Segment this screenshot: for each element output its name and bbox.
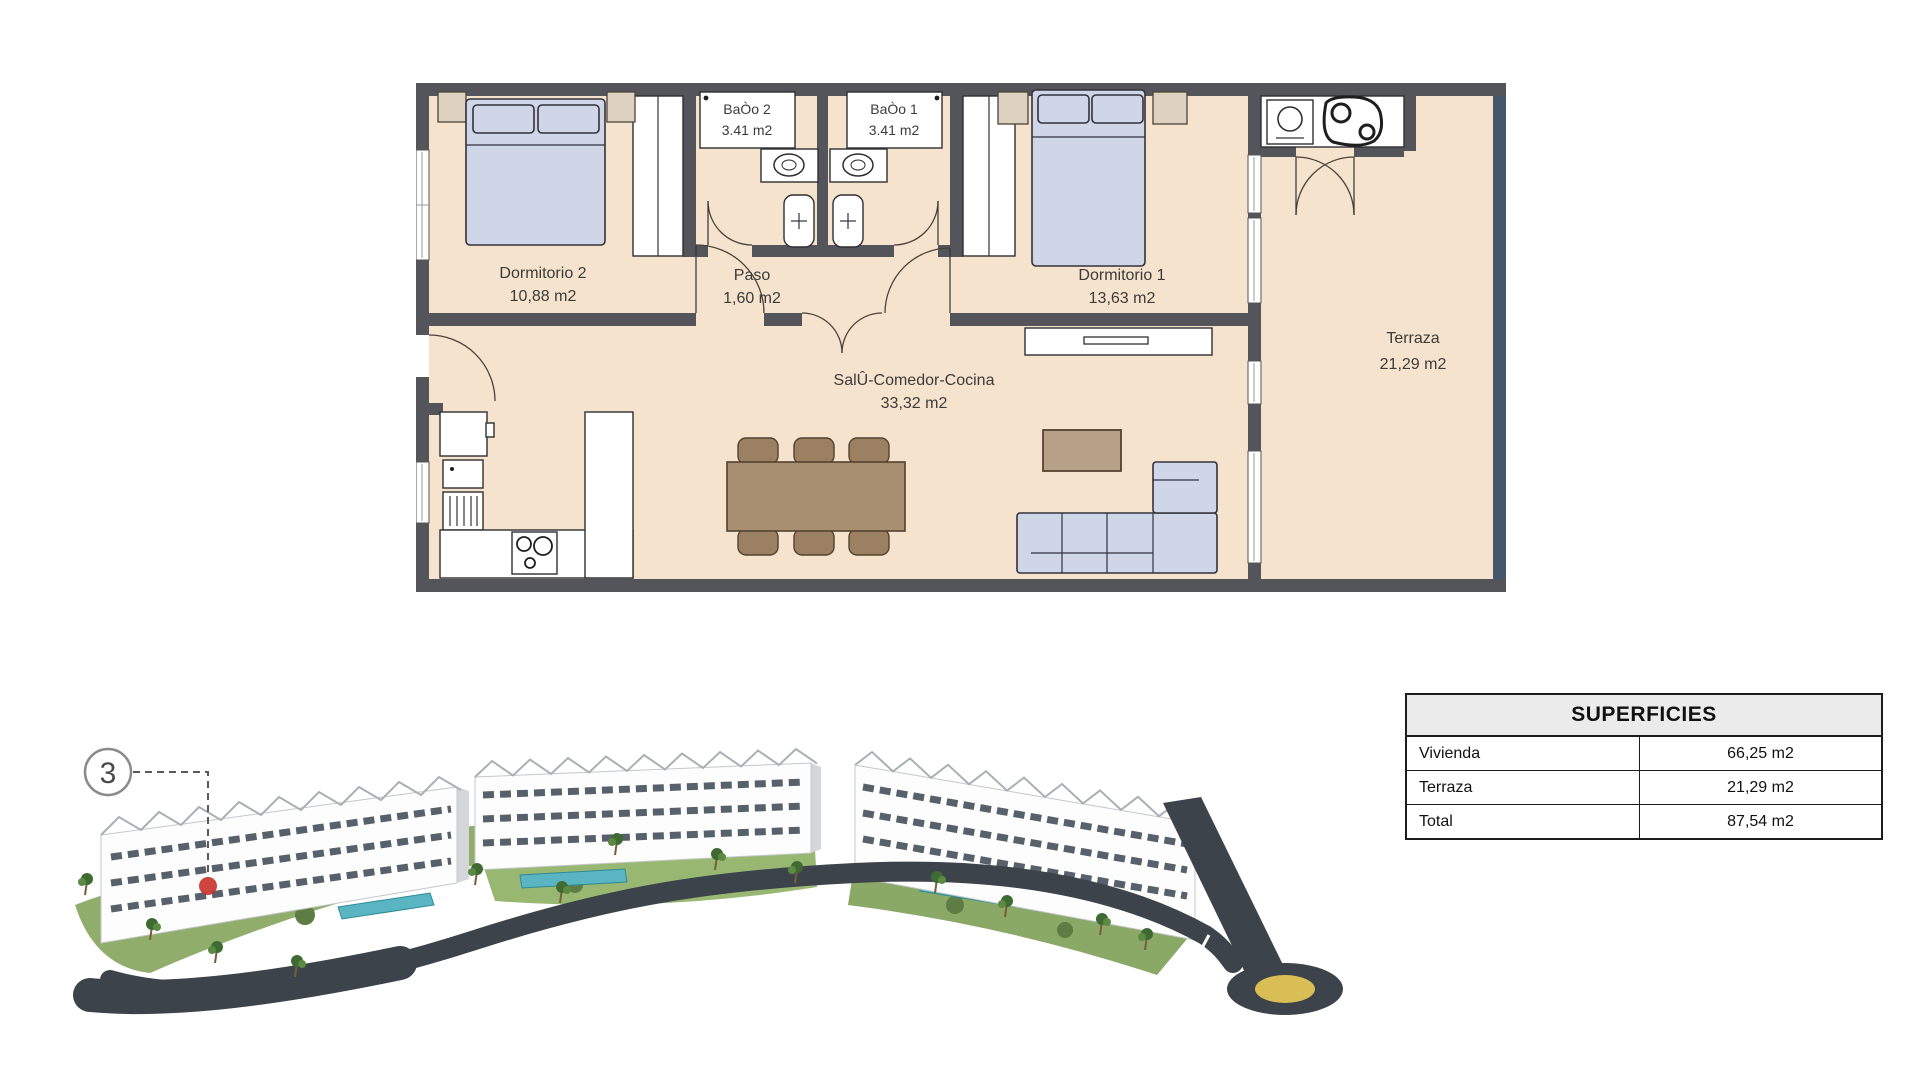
building-middle bbox=[475, 749, 821, 870]
coffee-table bbox=[1043, 430, 1121, 471]
pillow bbox=[1092, 95, 1143, 123]
room-label-terraza: Terraza bbox=[1386, 330, 1439, 347]
row-label: Vivienda bbox=[1407, 737, 1640, 770]
table-row: Total 87,54 m2 bbox=[1407, 805, 1881, 838]
room-label-bano2: BaÒo 2 bbox=[723, 101, 771, 117]
chair bbox=[794, 438, 834, 464]
room-area-salon: 33,32 m2 bbox=[881, 395, 948, 412]
chair bbox=[849, 438, 889, 464]
nightstand bbox=[1153, 92, 1187, 124]
fridge-icon bbox=[440, 412, 487, 456]
sofa-chaise bbox=[1153, 462, 1217, 513]
room-label-dormitorio1: Dormitorio 1 bbox=[1078, 267, 1165, 284]
chair bbox=[794, 529, 834, 555]
pillow bbox=[538, 105, 599, 133]
room-area-bano2: 3.41 m2 bbox=[722, 122, 773, 138]
room-label-bano1: BaÒo 1 bbox=[870, 101, 918, 117]
row-value: 66,25 m2 bbox=[1640, 737, 1881, 770]
row-value: 87,54 m2 bbox=[1640, 805, 1881, 838]
floor-plan: Dormitorio 2 10,88 m2 Paso 1,60 m2 BaÒo … bbox=[416, 83, 1506, 592]
row-label: Total bbox=[1407, 805, 1640, 838]
superficies-table: SUPERFICIES Vivienda 66,25 m2 Terraza 21… bbox=[1405, 693, 1883, 840]
room-area-dormitorio2: 10,88 m2 bbox=[510, 288, 577, 305]
nightstand bbox=[438, 92, 466, 122]
row-label: Terraza bbox=[1407, 771, 1640, 804]
nightstand bbox=[998, 92, 1028, 124]
room-area-bano1: 3.41 m2 bbox=[869, 122, 920, 138]
pillow bbox=[473, 105, 534, 133]
row-value: 21,29 m2 bbox=[1640, 771, 1881, 804]
marker-balloon-label: 3 bbox=[100, 757, 117, 790]
room-area-dormitorio1: 13,63 m2 bbox=[1089, 290, 1156, 307]
dining-table bbox=[727, 462, 905, 531]
site-render: 3 bbox=[55, 735, 1360, 1035]
bedroom-2-furniture bbox=[438, 92, 635, 245]
chair bbox=[738, 529, 778, 555]
chair bbox=[738, 438, 778, 464]
table-row: Terraza 21,29 m2 bbox=[1407, 771, 1881, 805]
kitchen-island bbox=[585, 412, 633, 578]
room-area-terraza: 21,29 m2 bbox=[1380, 356, 1447, 373]
room-label-dormitorio2: Dormitorio 2 bbox=[499, 265, 586, 282]
page: Dormitorio 2 10,88 m2 Paso 1,60 m2 BaÒo … bbox=[0, 0, 1920, 1080]
room-label-paso: Paso bbox=[734, 267, 771, 284]
pillow bbox=[1038, 95, 1089, 123]
terrace-balustrade bbox=[1493, 96, 1506, 579]
entry-opening bbox=[416, 335, 429, 377]
roundabout-center bbox=[1255, 975, 1315, 1003]
table-row: Vivienda 66,25 m2 bbox=[1407, 737, 1881, 771]
kitchen-sink bbox=[443, 460, 483, 488]
tv-sideboard bbox=[1025, 328, 1212, 355]
room-label-salon: SalÛ-Comedor-Cocina bbox=[834, 370, 995, 389]
room-area-paso: 1,60 m2 bbox=[723, 290, 781, 307]
nightstand bbox=[607, 92, 635, 122]
chair bbox=[849, 529, 889, 555]
superficies-table-title: SUPERFICIES bbox=[1407, 695, 1881, 737]
marker-red-dot bbox=[199, 877, 217, 895]
sofa bbox=[1017, 513, 1217, 573]
